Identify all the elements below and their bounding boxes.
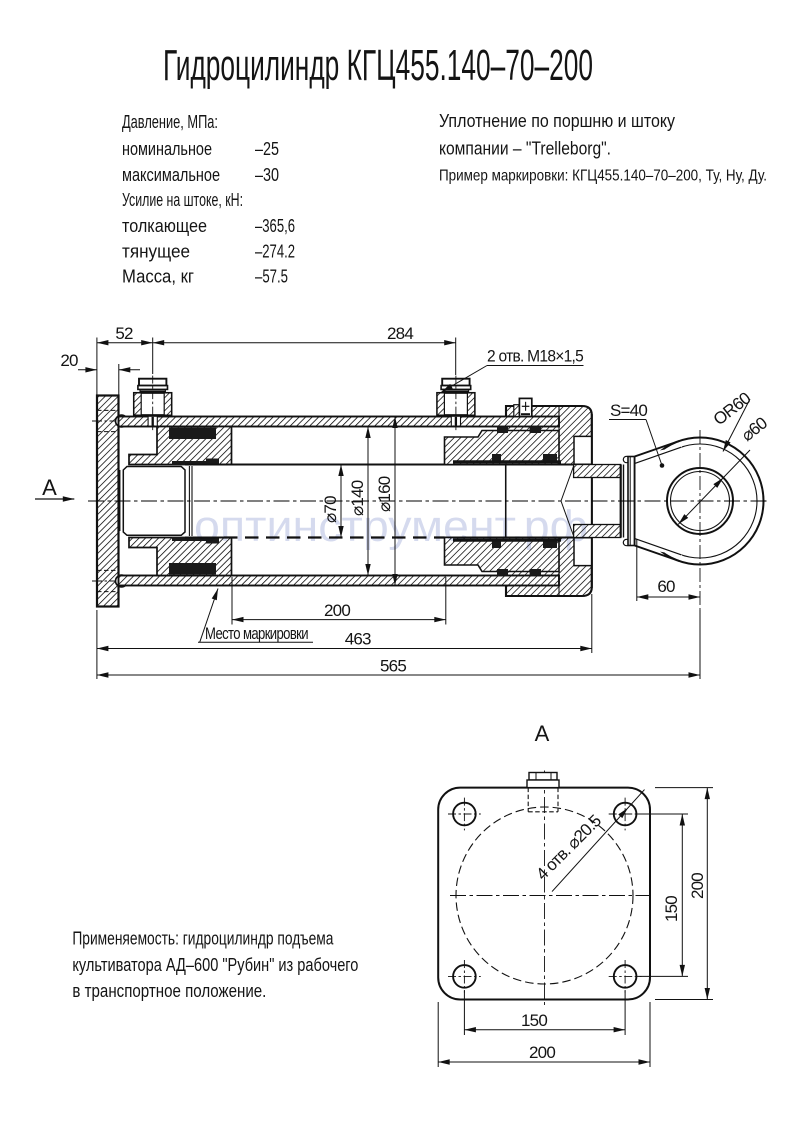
svg-text:Масса, кг: Масса, кг: [122, 267, 194, 287]
svg-text:565: 565: [380, 657, 406, 676]
svg-text:Пример маркировки: КГЦ455.140–: Пример маркировки: КГЦ455.140–70–200, Ту…: [439, 168, 767, 185]
svg-text:200: 200: [529, 1043, 555, 1062]
svg-text:А: А: [535, 721, 550, 746]
svg-text:20: 20: [60, 351, 78, 370]
svg-text:463: 463: [345, 630, 371, 649]
svg-text:–365,6: –365,6: [255, 216, 295, 236]
svg-text:–274.2: –274.2: [255, 242, 295, 262]
svg-text:толкающее: толкающее: [122, 216, 207, 236]
svg-text:Применяемость: гидроцилиндр по: Применяемость: гидроцилиндр подъема: [72, 928, 334, 948]
svg-text:максимальное: максимальное: [122, 165, 220, 185]
svg-text:–30: –30: [255, 165, 279, 185]
svg-text:150: 150: [662, 896, 681, 922]
svg-text:–25: –25: [255, 139, 279, 159]
svg-text:номинальное: номинальное: [122, 139, 212, 159]
svg-text:Гидроцилиндр КГЦ455.140–70–200: Гидроцилиндр КГЦ455.140–70–200: [163, 41, 593, 90]
svg-text:200: 200: [688, 873, 707, 899]
svg-text:культиватора АД–600 "Рубин" из: культиватора АД–600 "Рубин" из рабочего: [72, 955, 358, 975]
svg-text:компании – "Trelleborg".: компании – "Trelleborg".: [439, 139, 611, 159]
svg-text:в транспортное положение.: в транспортное положение.: [72, 981, 266, 1001]
svg-text:S=40: S=40: [610, 401, 647, 420]
svg-text:оптинструмент.рф: оптинструмент.рф: [194, 502, 588, 551]
svg-text:60: 60: [657, 577, 675, 596]
svg-text:150: 150: [521, 1011, 547, 1030]
svg-text:2 отв. M18×1,5: 2 отв. M18×1,5: [487, 347, 583, 366]
svg-text:200: 200: [324, 601, 350, 620]
svg-text:52: 52: [115, 324, 133, 343]
svg-text:тянущее: тянущее: [122, 242, 190, 262]
svg-text:А: А: [42, 475, 57, 500]
svg-text:Уплотнение по поршню и штоку: Уплотнение по поршню и штоку: [439, 111, 675, 131]
svg-text:Место маркировки: Место маркировки: [205, 624, 308, 643]
svg-text:284: 284: [387, 324, 413, 343]
svg-text:Давление, МПа:: Давление, МПа:: [122, 112, 218, 132]
svg-text:–57.5: –57.5: [255, 267, 288, 287]
svg-text:Усилие на штоке, кН:: Усилие на штоке, кН:: [122, 190, 243, 210]
